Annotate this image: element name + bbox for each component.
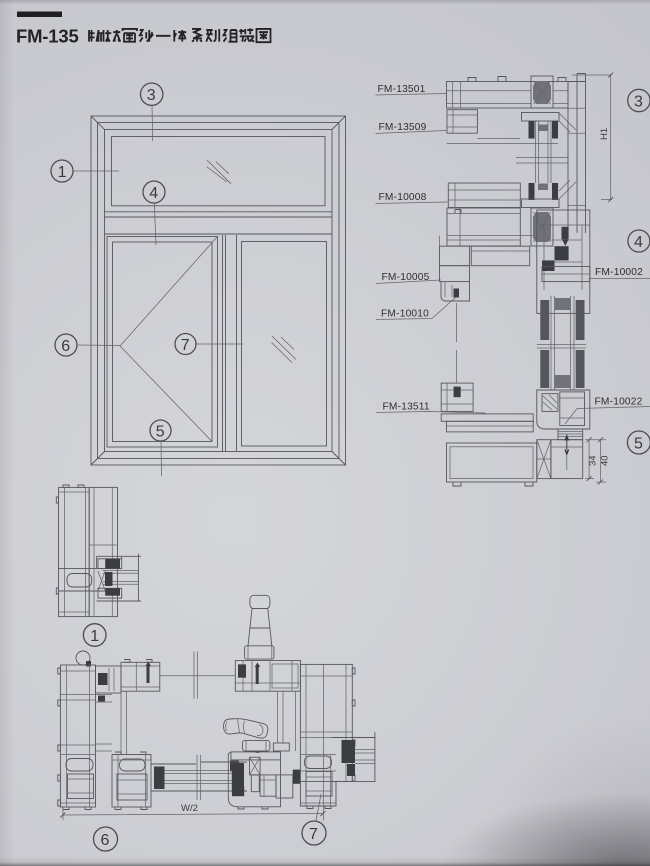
- svg-text:1: 1: [58, 164, 67, 181]
- svg-text:5: 5: [634, 436, 643, 453]
- svg-text:3: 3: [147, 87, 156, 104]
- svg-text:FM-10022: FM-10022: [595, 397, 643, 408]
- svg-text:FM-10010: FM-10010: [381, 309, 429, 320]
- svg-text:H1: H1: [599, 128, 610, 140]
- svg-text:4: 4: [149, 185, 158, 202]
- svg-text:FM-10002: FM-10002: [595, 267, 643, 278]
- svg-text:W/2: W/2: [181, 803, 198, 814]
- svg-text:7: 7: [181, 337, 190, 354]
- svg-text:6: 6: [101, 832, 110, 849]
- svg-text:3: 3: [634, 94, 643, 111]
- svg-text:4: 4: [634, 234, 643, 251]
- svg-text:6: 6: [61, 338, 70, 355]
- svg-text:FM-13501: FM-13501: [378, 84, 426, 95]
- svg-text:34: 34: [588, 455, 599, 466]
- svg-text:FM-135: FM-135: [16, 26, 79, 47]
- svg-text:FM-13511: FM-13511: [383, 402, 430, 413]
- svg-text:40: 40: [600, 455, 611, 466]
- svg-text:7: 7: [309, 826, 318, 843]
- svg-text:FM-10008: FM-10008: [379, 192, 427, 203]
- svg-text:1: 1: [90, 628, 99, 645]
- svg-text:5: 5: [156, 424, 165, 441]
